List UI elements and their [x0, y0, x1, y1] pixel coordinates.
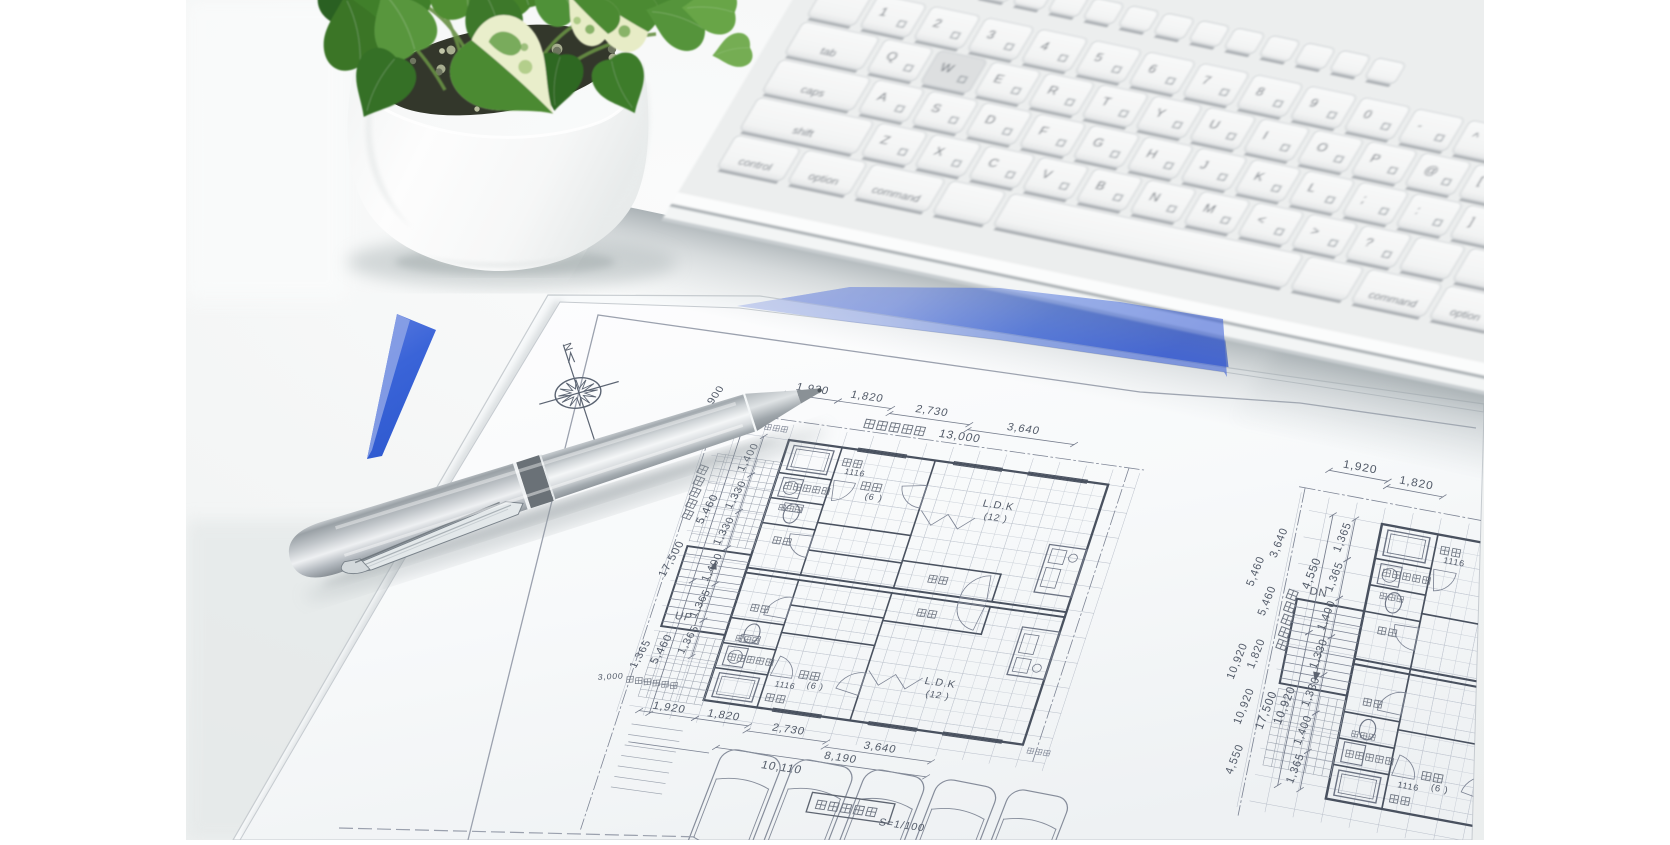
svg-text:3,000: 3,000 — [597, 671, 624, 682]
svg-text:(6 ): (6 ) — [806, 680, 825, 692]
